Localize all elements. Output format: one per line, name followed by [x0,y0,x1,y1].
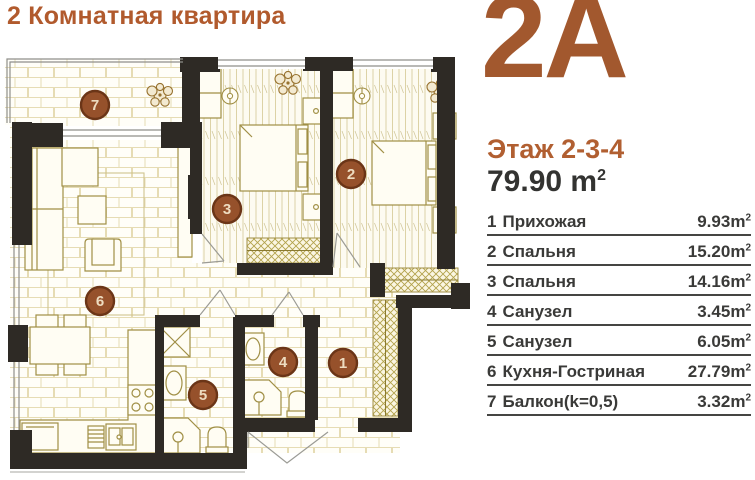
legend-row: 1Прихожая 9.93m2 [487,206,751,236]
unit-label: 2A [481,0,626,96]
floor-plan: 7 3 2 6 5 4 1 [2,57,472,475]
coffee-table [78,196,106,224]
room-marker-7: 7 [81,91,109,119]
room-name: Спальня [502,242,575,261]
room-name: Санузел [502,302,572,321]
room-name: Прихожая [502,212,586,231]
room-area: 27.79 [688,362,731,381]
info-panel: 2A Этаж 2-3-4 79.90 m2 1Прихожая 9.93m2 … [487,0,751,477]
legend: 1Прихожая 9.93m2 2Спальня 15.20m2 3Спаль… [487,206,751,416]
wall-lamp-icon [222,88,238,104]
svg-text:3: 3 [223,201,231,218]
room-marker-4: 4 [269,348,297,376]
room-marker-2: 2 [337,160,365,188]
room-number: 2 [487,242,496,261]
total-area: 79.90 m2 [487,165,606,199]
svg-text:5: 5 [199,387,207,404]
room-marker-3: 3 [213,195,241,223]
room-number: 1 [487,212,496,231]
kitchen-sink [106,424,136,450]
svg-text:4: 4 [279,354,288,371]
legend-row: 4Санузел 3.45m2 [487,296,751,326]
page: { "header": { "title": "2 Комнатная квар… [0,0,755,477]
room-name: Кухня-Гостриная [502,362,645,381]
room-number: 4 [487,302,496,321]
room-area: 9.93 [697,212,730,231]
total-area-value: 79.90 [487,165,562,198]
legend-row: 2Спальня 15.20m2 [487,236,751,266]
room-marker-6: 6 [86,287,114,315]
page-title: 2 Комнатная квартира [7,2,286,31]
bed [372,141,436,205]
dishwasher [88,426,104,448]
room-area: 6.05 [697,332,730,351]
floor-label: Этаж 2-3-4 [487,134,624,165]
room-area: 3.45 [697,302,730,321]
room-area: 3.32 [697,392,730,411]
room-number: 6 [487,362,496,381]
tv-console [178,145,192,257]
floor-plan-svg: 7 3 2 6 5 4 1 [2,57,472,475]
room-number: 7 [487,392,496,411]
room-name: Балкон(k=0,5) [502,392,618,411]
room-marker-5: 5 [189,381,217,409]
armchair [85,239,121,271]
stove [128,385,157,415]
svg-text:6: 6 [96,293,104,310]
svg-text:1: 1 [339,355,347,372]
room-area: 14.16 [688,272,731,291]
legend-row: 5Санузел 6.05m2 [487,326,751,356]
room-number: 5 [487,332,496,351]
room-name: Санузел [502,332,572,351]
legend-row: 7Балкон(k=0,5) 3.32m2 [487,386,751,416]
legend-row: 3Спальня 14.16m2 [487,266,751,296]
wall-lamp-icon [354,88,370,104]
legend-row: 6Кухня-Гостриная 27.79m2 [487,356,751,386]
room-name: Спальня [502,272,575,291]
room-area: 15.20 [688,242,731,261]
room-marker-1: 1 [329,349,357,377]
total-area-unit: m [570,165,597,198]
toilet [206,427,228,453]
svg-text:7: 7 [91,97,99,114]
svg-text:2: 2 [347,166,355,183]
room-number: 3 [487,272,496,291]
bed [240,125,308,191]
